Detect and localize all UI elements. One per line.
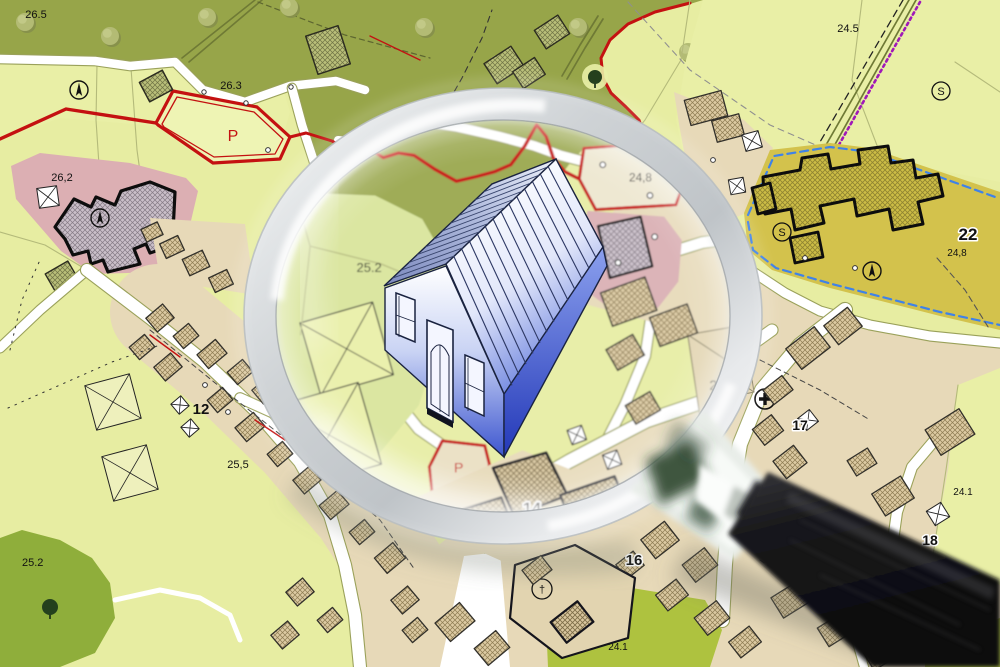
svg-text:26.3: 26.3 <box>220 80 241 92</box>
svg-text:P: P <box>228 128 239 145</box>
svg-text:12: 12 <box>193 401 210 418</box>
svg-text:25.2: 25.2 <box>22 557 43 569</box>
svg-text:17: 17 <box>792 417 808 433</box>
svg-text:24.1: 24.1 <box>953 487 973 498</box>
svg-text:22: 22 <box>959 225 978 244</box>
svg-text:26,2: 26,2 <box>51 172 72 184</box>
svg-text:24,8: 24,8 <box>947 248 967 259</box>
svg-text:26.5: 26.5 <box>25 9 46 21</box>
svg-text:24.5: 24.5 <box>837 23 858 35</box>
svg-text:†: † <box>539 584 545 596</box>
svg-text:S: S <box>778 227 785 239</box>
svg-text:25,5: 25,5 <box>227 459 248 471</box>
svg-text:S: S <box>937 86 944 98</box>
